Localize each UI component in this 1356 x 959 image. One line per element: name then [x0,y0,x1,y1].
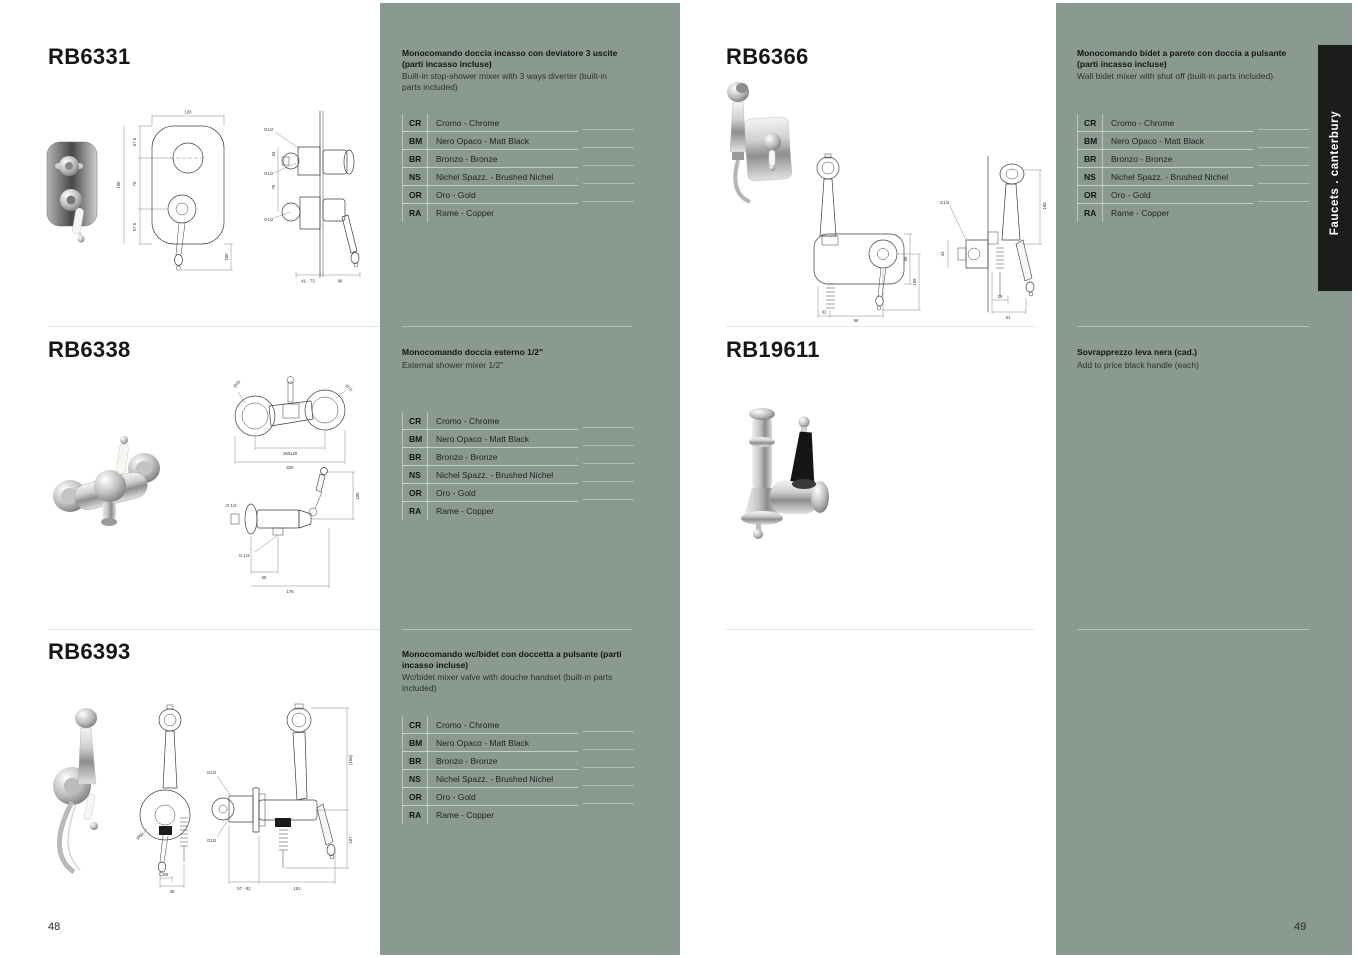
product-code-rb19611: RB19611 [726,337,820,363]
product-desc-en: Wall bidet mixer with shut off (built-in… [1077,71,1302,82]
dim-label: 150 [1042,202,1047,210]
finish-name: Rame - Copper [427,810,494,820]
finish-code: CR [402,118,427,128]
finish-row: RARame - Copper [402,204,634,222]
finish-name: Rame - Copper [427,506,494,516]
rb6331-side-drawing: G1/2 G1/2 G1/2 34 75 41 - 73 99 [260,105,368,285]
finish-row: NSNichel Spazz. - Brushed Nichel [1077,168,1309,186]
section-divider [1077,326,1309,327]
finish-code: OR [402,488,427,498]
dim-label: 57.5 [132,222,137,231]
product-desc-en: Wc/bidet mixer valve with douche handset… [402,672,627,693]
rb6366-product-photo [716,78,796,206]
product-title-it: Monocomando bidet a parete con doccia a … [1077,48,1302,69]
finish-row: NSNichel Spazz. - Brushed Nichel [402,168,634,186]
finish-row: OROro - Gold [402,484,634,502]
dim-label: 57.5 [132,137,137,146]
finishes-table-rb6393: CRCromo - ChromeBMNero Opaco - Matt Blac… [402,716,634,824]
dim-label: 75 [271,184,276,189]
dim-label: 40 [170,889,175,894]
finish-name: Nero Opaco - Matt Black [427,434,529,444]
section-divider [726,326,1035,327]
finish-row: OROro - Gold [402,788,634,806]
finish-code: RA [402,506,427,516]
product-desc-en: Add to price black handle (each) [1077,360,1302,371]
product-title-it: Monocomando wc/bidet con doccetta a puls… [402,649,627,670]
product-title-it: Monocomando doccia esterno 1/2" [402,347,627,358]
finishes-table-rb6331: CRCromo - ChromeBMNero Opaco - Matt Blac… [402,114,634,222]
catalog-spread: Faucets . canterbury RB6331 RB6338 RB639… [0,0,1356,959]
product-info-rb6393: Monocomando wc/bidet con doccetta a puls… [402,649,627,694]
finish-name: Bronzo - Bronze [1102,154,1172,164]
finish-name: Nero Opaco - Matt Black [427,738,529,748]
finish-row: CRCromo - Chrome [402,114,634,132]
finish-code: OR [402,792,427,802]
finish-row: BRBronzo - Bronze [402,150,634,168]
dim-label: 34 [271,151,276,156]
product-title-it: Sovrapprezzo leva nera (cad.) [1077,347,1302,358]
finish-name: Rame - Copper [1102,208,1169,218]
product-code-rb6366: RB6366 [726,44,809,70]
finish-code: CR [402,416,427,426]
rb6366-front-drawing: 32 66 90 109 [798,150,923,322]
product-code-rb6393: RB6393 [48,639,131,665]
dim-label: G1/2 [264,171,274,176]
section-divider [1077,629,1309,630]
rb6331-front-drawing: 120 57.5 75 57.5 190 100 [112,108,237,283]
finish-row: NSNichel Spazz. - Brushed Nichel [402,770,634,788]
product-code-rb6331: RB6331 [48,44,131,70]
finish-row: CRCromo - Chrome [402,716,634,734]
finish-code: RA [402,810,427,820]
finish-name: Cromo - Chrome [427,118,499,128]
finish-name: Nichel Spazz. - Brushed Nichel [1102,172,1228,182]
dim-label: Ø70 [232,379,242,389]
rb6331-product-photo [45,138,109,248]
dim-label: Ø60 [135,831,145,841]
finish-row: BMNero Opaco - Matt Black [402,132,634,150]
rb6393-front-drawing: Ø60 26 40 [132,700,202,895]
dim-label: 29 [998,294,1003,299]
finish-code: BM [1077,136,1102,146]
finish-row: BRBronzo - Bronze [402,448,634,466]
side-tab-label: Faucets . canterbury [1329,111,1341,235]
finish-code: BR [402,756,427,766]
product-title-it: Monocomando doccia incasso con deviatore… [402,48,627,69]
dim-label: Ø70 [344,383,354,393]
finish-code: NS [1077,172,1102,182]
dim-label: 161 [293,886,301,891]
dim-label: 109 [355,492,360,500]
finish-row: NSNichel Spazz. - Brushed Nichel [402,466,634,484]
finish-row: BRBronzo - Bronze [402,752,634,770]
product-info-rb6366: Monocomando bidet a parete con doccia a … [1077,48,1302,82]
dim-label: 190 [116,181,121,189]
product-code-rb6338: RB6338 [48,337,131,363]
finish-row: OROro - Gold [1077,186,1309,204]
rb6338-product-photo [48,430,176,552]
rb6338-technical-drawing: Ø70 Ø70 150±20 220 G 1/2 G 1/2 66 175 10… [225,376,365,594]
finish-code: BM [402,434,427,444]
finish-code: RA [1077,208,1102,218]
finish-code: CR [1077,118,1102,128]
section-divider [402,629,632,630]
finish-code: NS [402,774,427,784]
dim-label: 57 - 82 [237,886,251,891]
product-info-rb6338: Monocomando doccia esterno 1/2" External… [402,347,627,370]
finish-row: RARame - Copper [1077,204,1309,222]
finish-name: Bronzo - Bronze [427,154,497,164]
dim-label: 66 [854,318,859,322]
finish-row: CRCromo - Chrome [402,412,634,430]
dim-label: 75 [132,181,137,186]
finish-row: BMNero Opaco - Matt Black [402,734,634,752]
rb6393-product-photo [50,698,110,878]
dim-label: 99 [338,279,343,284]
finish-code: CR [402,720,427,730]
finish-name: Oro - Gold [427,792,476,802]
finish-name: Nichel Spazz. - Brushed Nichel [427,470,553,480]
product-info-rb19611: Sovrapprezzo leva nera (cad.) Add to pri… [1077,347,1302,370]
rb19611-product-photo [730,408,845,558]
finish-code: BR [402,154,427,164]
finish-code: NS [402,470,427,480]
rb6366-side-drawing: G1/2 43 150 29 51 [938,148,1050,320]
dim-label: 51 [1006,315,1011,320]
section-divider [48,326,380,327]
finish-name: Rame - Copper [427,208,494,218]
finish-name: Cromo - Chrome [427,720,499,730]
dim-label: G1/2 [207,770,217,775]
page-number-left: 48 [48,921,60,933]
section-divider [726,629,1035,630]
dim-label: 109 [912,278,917,286]
dim-label: (156) [348,754,353,765]
dim-label: 66 [262,575,267,580]
dim-label: 26 [164,872,169,877]
side-tab-faucets-canterbury: Faucets . canterbury [1318,45,1352,291]
dim-label: 43 [940,251,945,256]
dim-label: 150±20 [283,451,298,456]
product-info-rb6331: Monocomando doccia incasso con deviatore… [402,48,627,93]
product-desc-en: External shower mixer 1/2" [402,360,627,371]
finish-name: Oro - Gold [1102,190,1151,200]
finish-row: CRCromo - Chrome [1077,114,1309,132]
dim-label: 41 - 73 [301,279,315,284]
finish-name: Oro - Gold [427,190,476,200]
dim-label: G1/2 [264,127,274,132]
finish-name: Cromo - Chrome [427,416,499,426]
finish-name: Nero Opaco - Matt Black [427,136,529,146]
finish-code: BR [1077,154,1102,164]
dim-label: 90 [903,256,908,261]
finish-code: RA [402,208,427,218]
finish-name: Nichel Spazz. - Brushed Nichel [427,774,553,784]
dim-label: 120 [184,110,192,115]
section-divider [402,326,632,327]
finish-row: RARame - Copper [402,502,634,520]
finish-row: BMNero Opaco - Matt Black [402,430,634,448]
finish-name: Oro - Gold [427,488,476,498]
dim-label: 100 [224,253,229,261]
finish-row: RARame - Copper [402,806,634,824]
dim-label: G1/2 [207,838,217,843]
finish-code: OR [1077,190,1102,200]
finish-code: BM [402,738,427,748]
dim-label: 107 [348,836,353,844]
finish-code: BM [402,136,427,146]
finish-code: NS [402,172,427,182]
product-desc-en: Built-in stop-shower mixer with 3 ways d… [402,71,627,92]
dim-label: 32 [822,310,827,315]
finish-name: Nero Opaco - Matt Black [1102,136,1204,146]
dim-label: G1/2 [264,217,274,222]
dim-label: G 1/2 [239,553,250,558]
finishes-table-rb6338: CRCromo - ChromeBMNero Opaco - Matt Blac… [402,412,634,520]
finish-name: Nichel Spazz. - Brushed Nichel [427,172,553,182]
section-divider [48,629,380,630]
finish-row: BMNero Opaco - Matt Black [1077,132,1309,150]
dim-label: 175 [286,589,294,594]
rb6393-side-drawing: G1/2 G1/2 (156) 107 57 - 82 161 [205,700,355,895]
finishes-table-rb6366: CRCromo - ChromeBMNero Opaco - Matt Blac… [1077,114,1309,222]
finish-name: Bronzo - Bronze [427,452,497,462]
finish-name: Bronzo - Bronze [427,756,497,766]
page-number-right: 49 [1294,921,1306,933]
dim-label: 220 [286,465,294,470]
dim-label: G 1/2 [226,503,237,508]
finish-name: Cromo - Chrome [1102,118,1174,128]
finish-code: OR [402,190,427,200]
finish-row: BRBronzo - Bronze [1077,150,1309,168]
dim-label: G1/2 [940,200,950,205]
finish-row: OROro - Gold [402,186,634,204]
finish-code: BR [402,452,427,462]
